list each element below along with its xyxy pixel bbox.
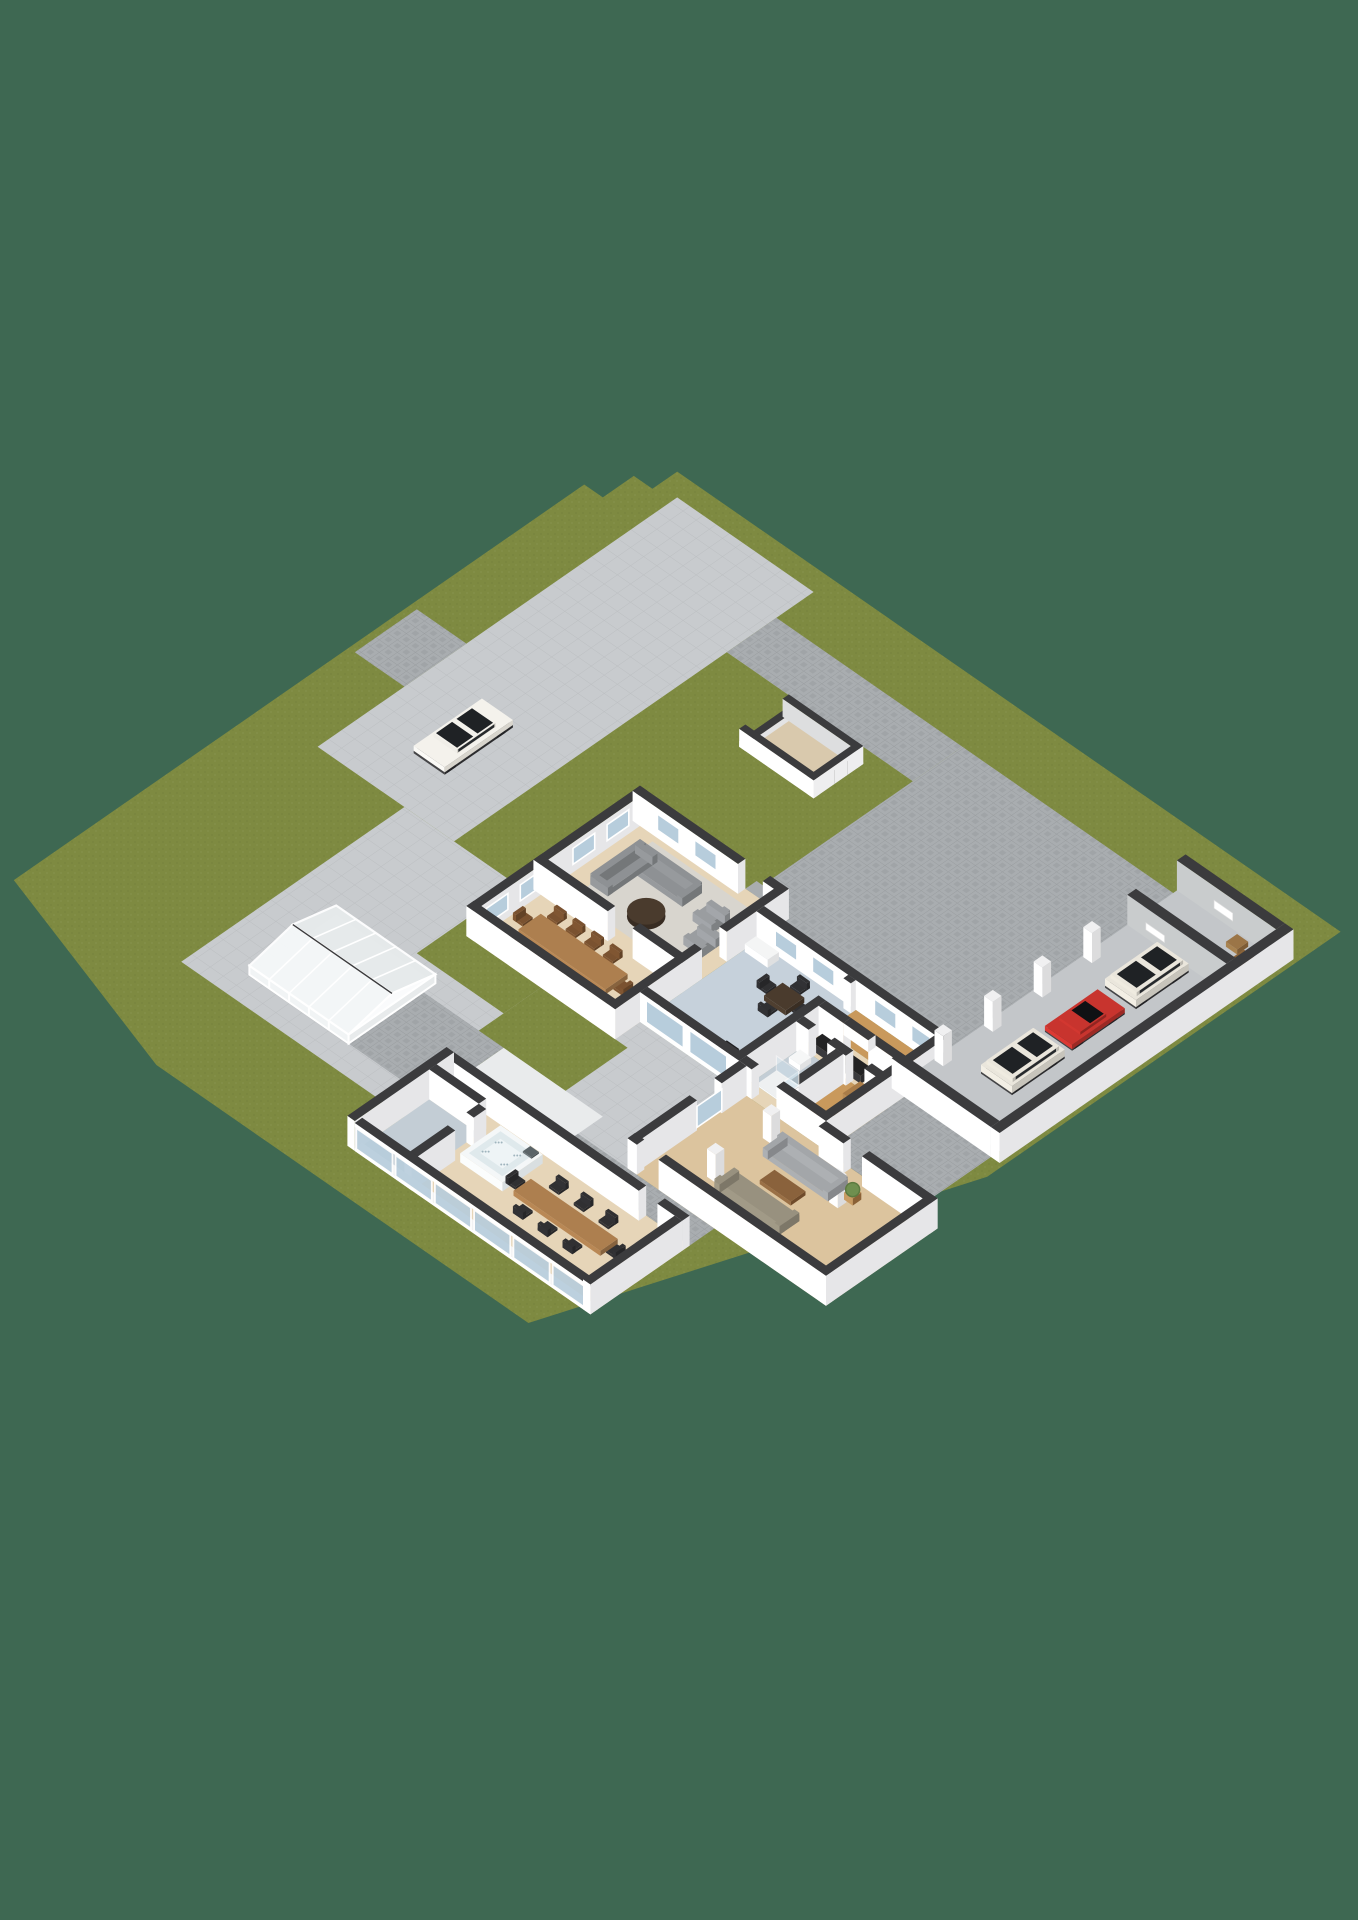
carport-pillar <box>984 990 1001 1032</box>
carport-pillar <box>935 1024 952 1066</box>
round-coffee-table <box>627 898 666 930</box>
carport-pillar <box>1083 921 1100 963</box>
scene-root <box>14 472 1341 1323</box>
floorplan-3d-render <box>0 0 1358 1920</box>
carport-pillar <box>1034 955 1051 997</box>
floorplan-canvas <box>0 0 1358 1920</box>
